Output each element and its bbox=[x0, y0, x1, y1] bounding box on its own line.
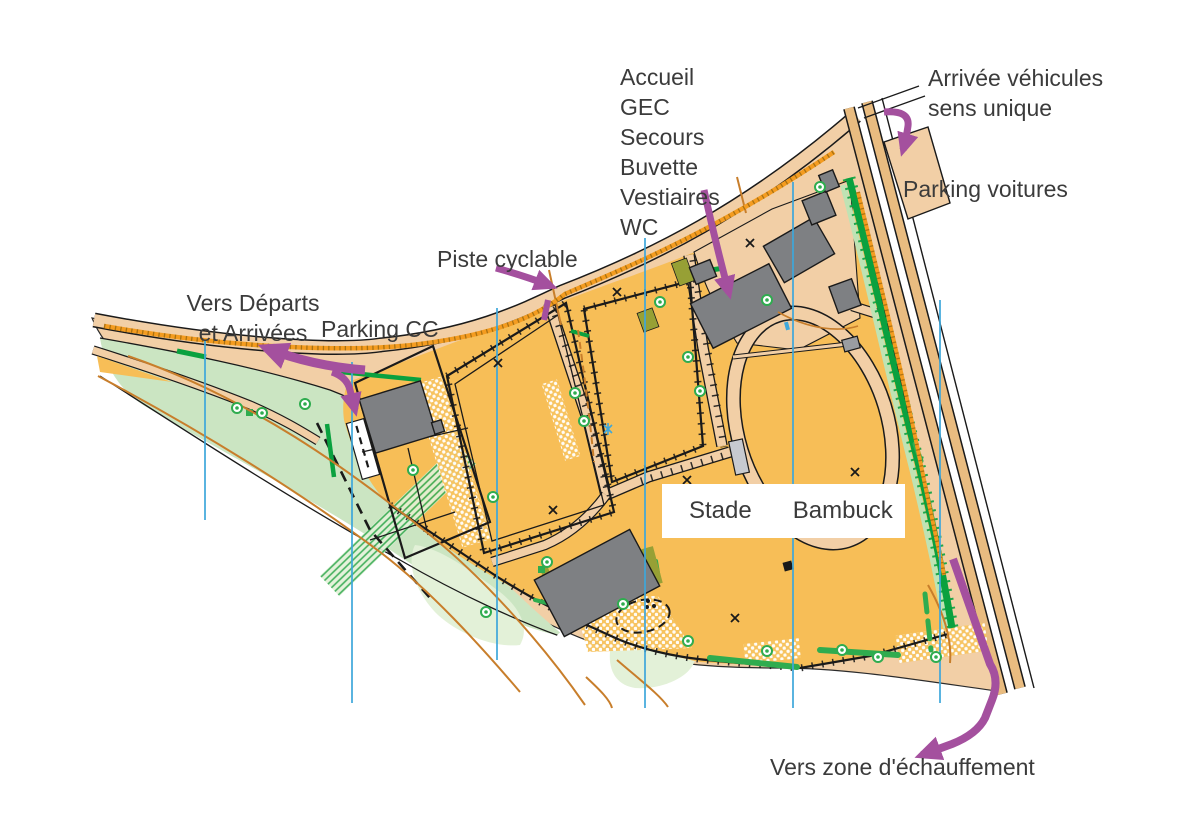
vehicle-arrival-label: Arrivée véhicules sens unique bbox=[928, 63, 1103, 123]
map-canvas: Accueil GEC Secours Buvette Vestiaires W… bbox=[0, 0, 1193, 827]
services-label: Accueil GEC Secours Buvette Vestiaires W… bbox=[620, 62, 720, 242]
services-line: Vestiaires bbox=[620, 182, 720, 212]
start-finish-line: Vers Départs bbox=[183, 288, 323, 318]
warmup-label: Vers zone d'échauffement bbox=[770, 752, 1035, 782]
start-finish-line: et Arrivées bbox=[183, 318, 323, 348]
services-line: GEC bbox=[620, 92, 720, 122]
start-finish-label: Vers Départs et Arrivées bbox=[183, 288, 323, 348]
services-line: Accueil bbox=[620, 62, 720, 92]
vehicle-arrival-line: sens unique bbox=[928, 93, 1103, 123]
stadium-name-word1: Stade bbox=[689, 497, 752, 525]
stadium-name-word2: Bambuck bbox=[793, 497, 893, 525]
services-line: Secours bbox=[620, 122, 720, 152]
vehicle-arrival-line: Arrivée véhicules bbox=[928, 63, 1103, 93]
parking-cars-label: Parking voitures bbox=[903, 174, 1068, 204]
services-line: WC bbox=[620, 212, 720, 242]
stadium-name-box: Stade Bambuck bbox=[662, 484, 905, 538]
services-line: Buvette bbox=[620, 152, 720, 182]
orienteering-map-svg bbox=[0, 0, 1193, 827]
bike-path-label: Piste cyclable bbox=[437, 244, 578, 274]
parking-cc-label: Parking CC bbox=[321, 314, 439, 344]
